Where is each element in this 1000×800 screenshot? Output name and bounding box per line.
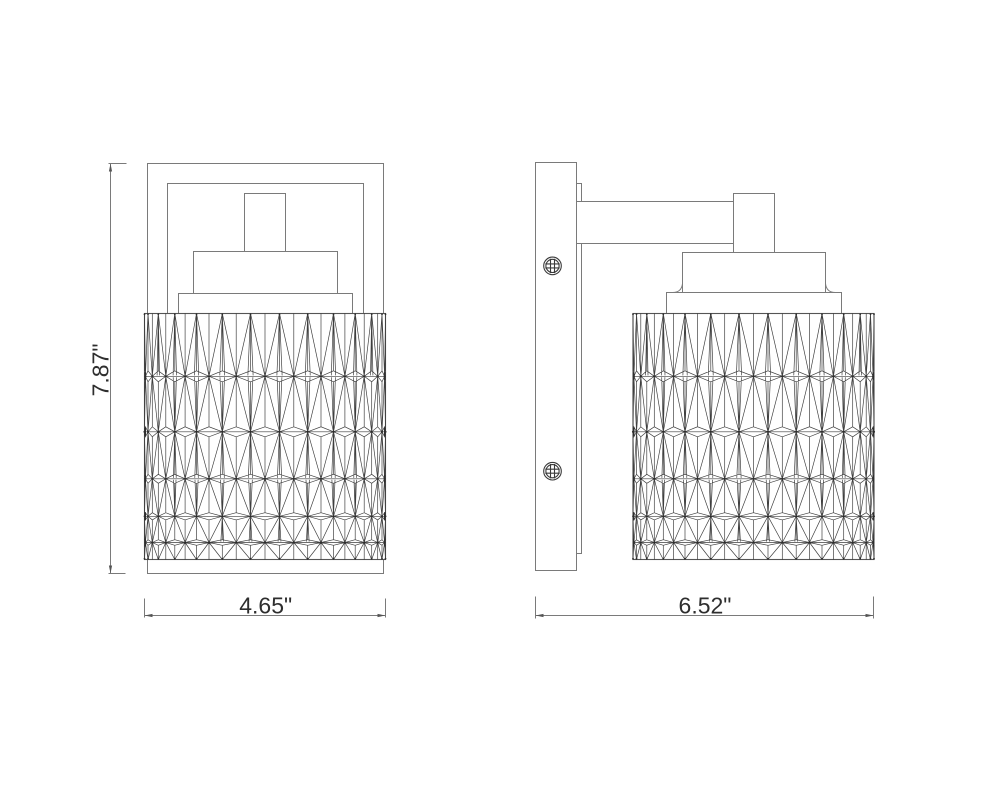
- svg-text:7.87": 7.87": [87, 343, 113, 396]
- svg-text:6.52": 6.52": [679, 593, 732, 619]
- svg-text:4.65": 4.65": [239, 593, 292, 619]
